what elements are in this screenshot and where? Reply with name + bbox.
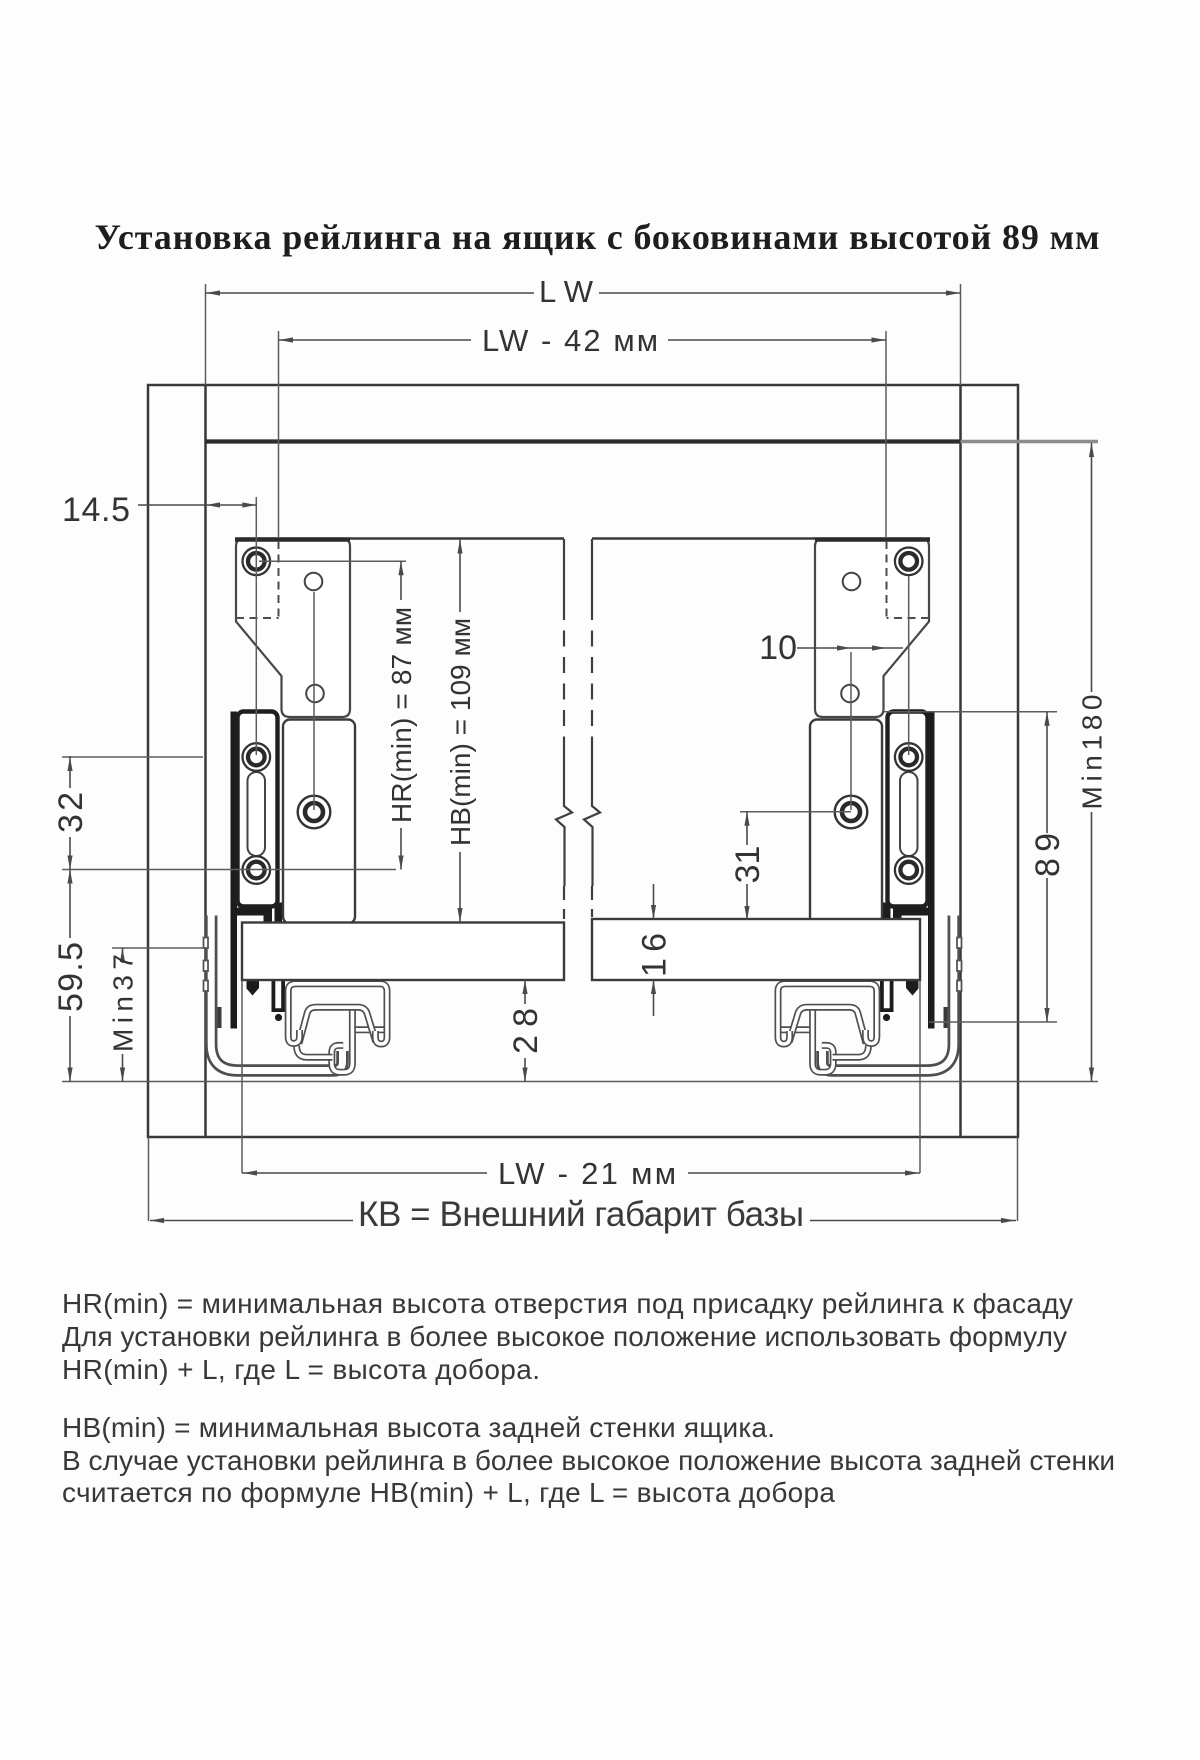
- svg-text:HB(min) = 109 мм: HB(min) = 109 мм: [445, 618, 476, 846]
- svg-text:Для установки рейлинга в более: Для установки рейлинга в более высокое п…: [62, 1321, 1067, 1352]
- svg-text:10: 10: [759, 629, 797, 667]
- svg-text:В случае установки рейлинга в: В случае установки рейлинга в более высо…: [62, 1445, 1115, 1476]
- svg-text:КВ = Внешний габарит базы: КВ = Внешний габарит базы: [358, 1195, 804, 1234]
- svg-text:HB(min) = минимальная высота з: HB(min) = минимальная высота задней стен…: [62, 1412, 775, 1443]
- svg-text:LW: LW: [539, 274, 594, 309]
- svg-text:LW - 42 мм: LW - 42 мм: [482, 323, 658, 358]
- svg-text:59.5: 59.5: [52, 942, 90, 1012]
- svg-text:Min37: Min37: [107, 954, 138, 1052]
- svg-text:LW - 21 мм: LW - 21 мм: [498, 1156, 676, 1191]
- svg-text:14.5: 14.5: [62, 491, 130, 529]
- svg-text:HR(min) = минимальная высота о: HR(min) = минимальная высота отверстия п…: [62, 1288, 1073, 1319]
- svg-text:Установка рейлинга на ящик с б: Установка рейлинга на ящик с боковинами …: [95, 217, 1100, 257]
- svg-text:HR(min) = 87 мм: HR(min) = 87 мм: [386, 607, 417, 823]
- svg-text:считается по формуле HB(min) +: считается по формуле HB(min) + L, где L …: [62, 1477, 835, 1508]
- svg-text:HR(min) + L, где L = высота д: HR(min) + L, где L = высота добора.: [62, 1354, 540, 1385]
- svg-text:31: 31: [729, 846, 767, 884]
